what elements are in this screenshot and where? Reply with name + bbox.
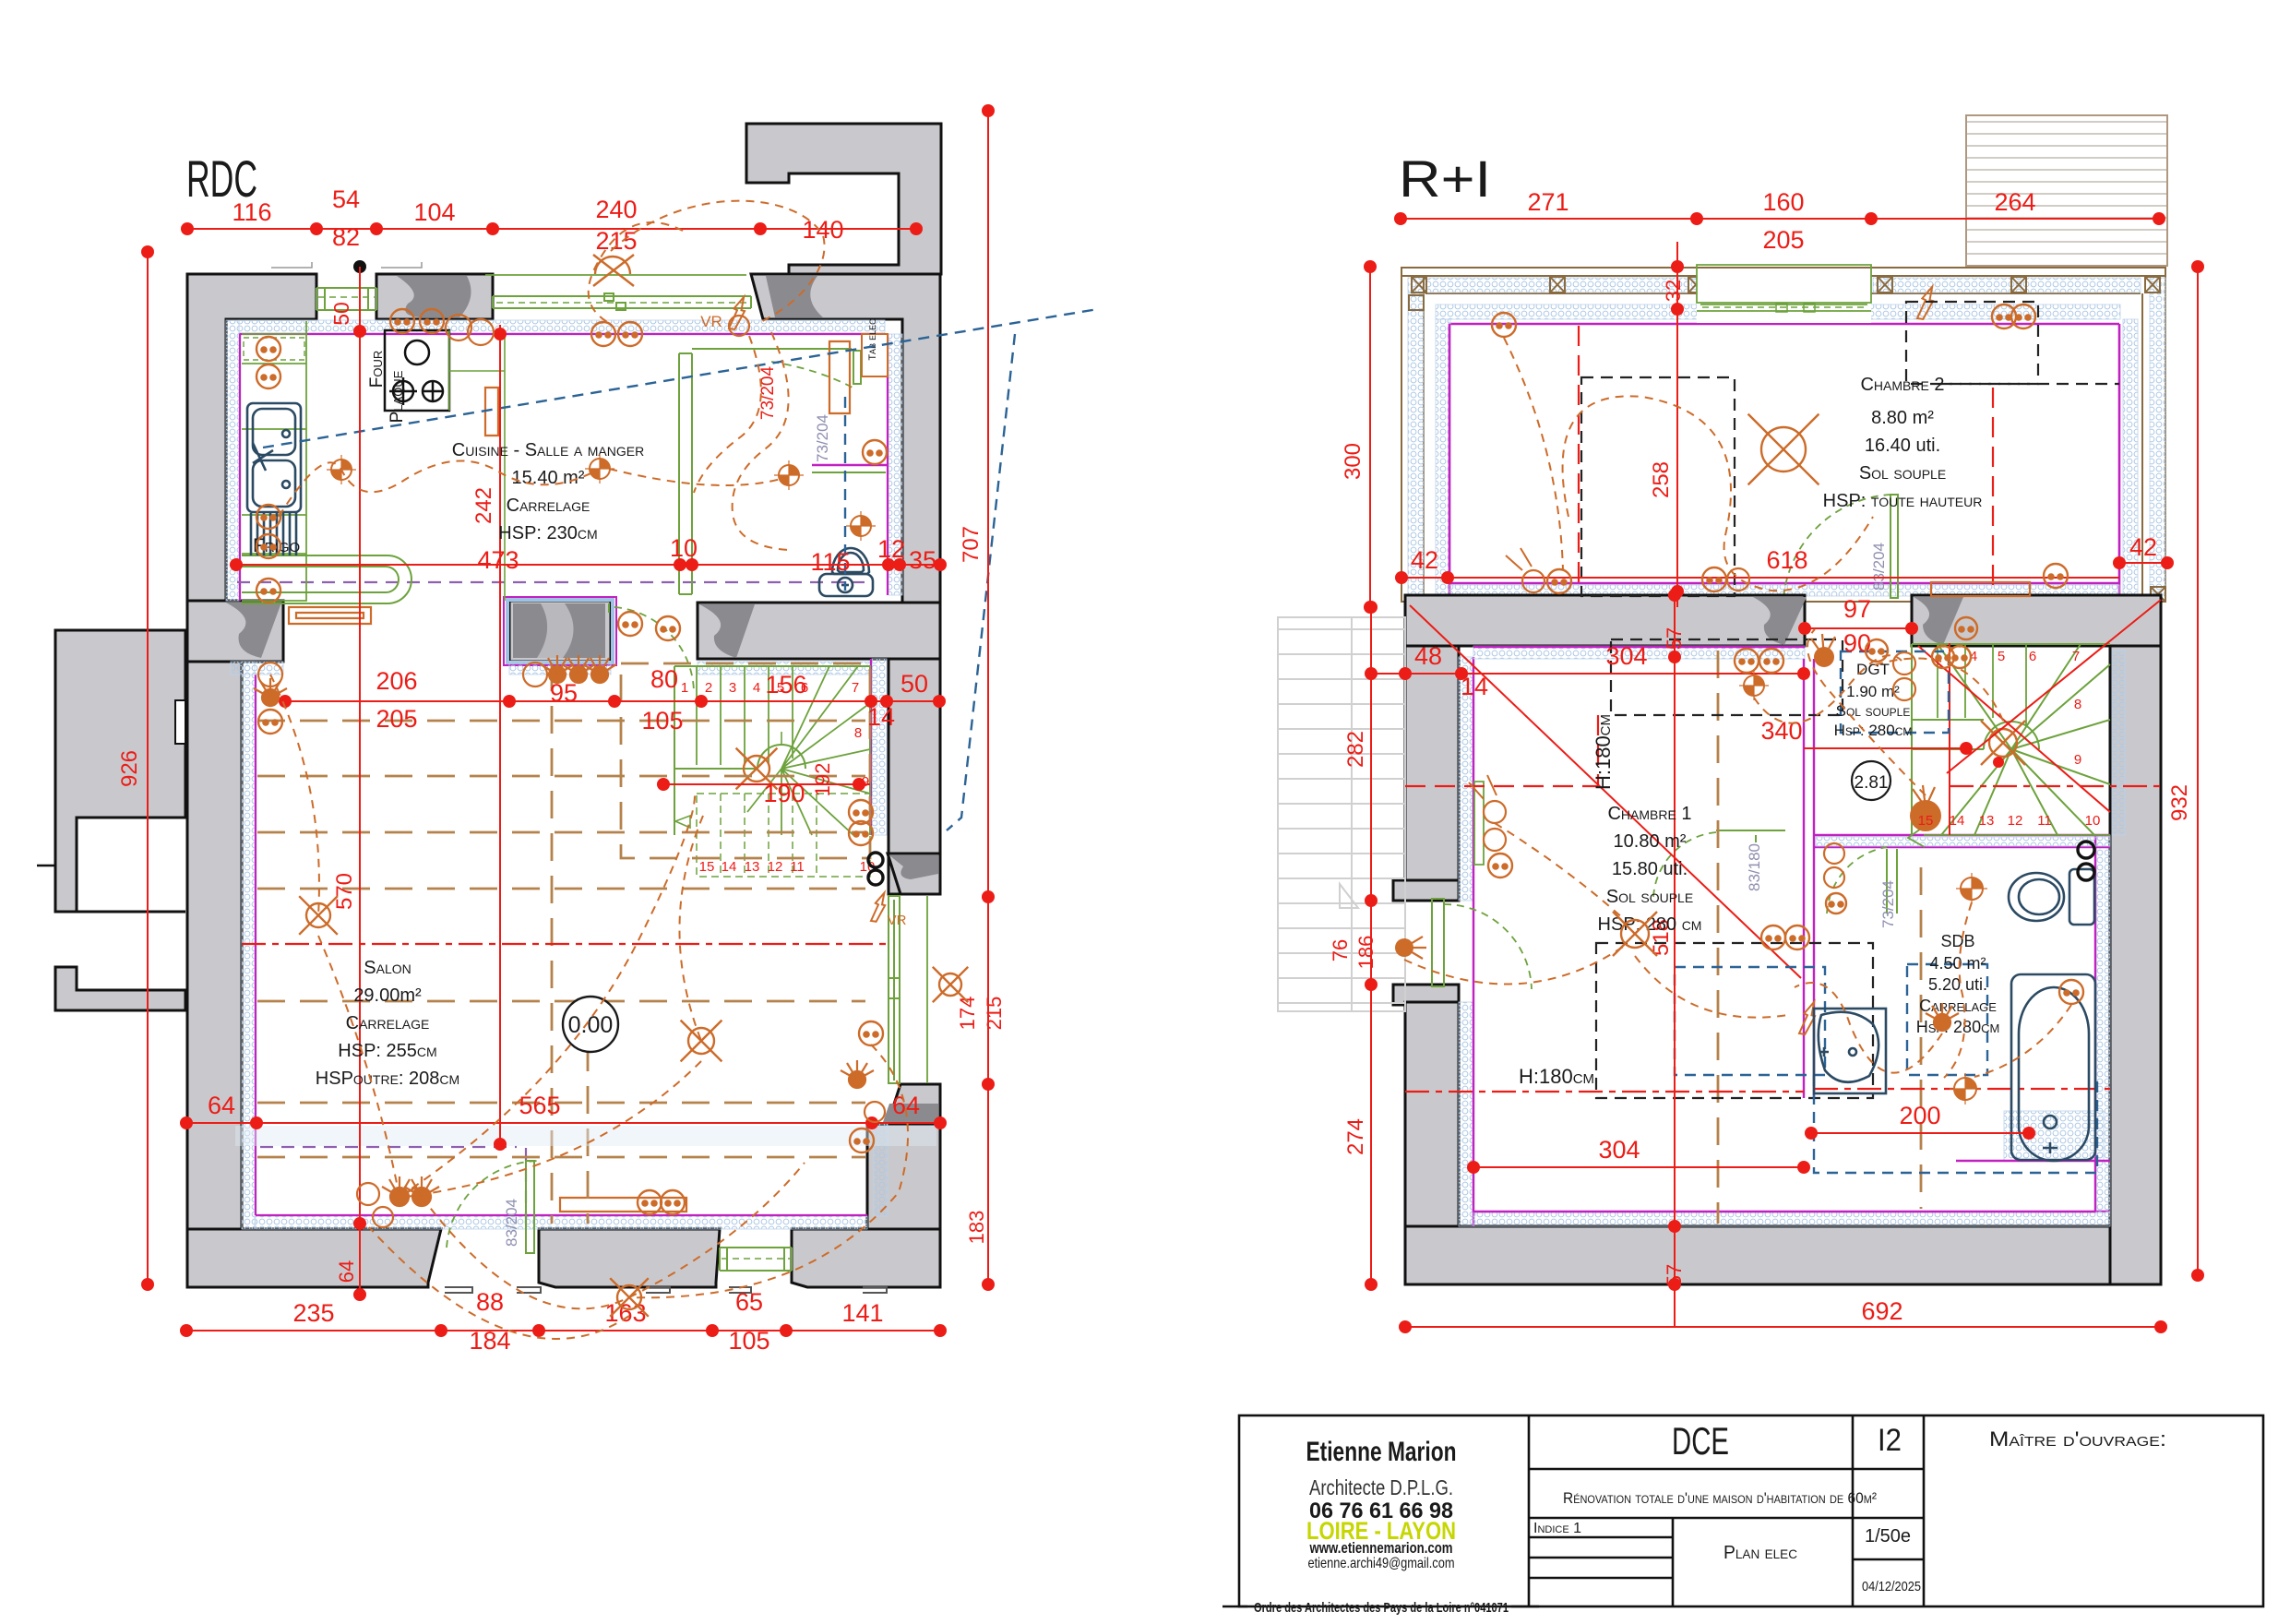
svg-text:565: 565: [519, 1092, 560, 1119]
svg-text:48: 48: [1414, 642, 1442, 670]
svg-text:Carrelage: Carrelage: [1919, 997, 1997, 1015]
svg-text:Four: Four: [367, 351, 387, 388]
svg-text:DCE: DCE: [1672, 1419, 1729, 1463]
svg-text:8: 8: [2074, 697, 2081, 712]
svg-text:Plaque: Plaque: [388, 370, 407, 423]
svg-text:160: 160: [1762, 188, 1804, 216]
svg-text:etienne.archi49@gmail.com: etienne.archi49@gmail.com: [1308, 1556, 1455, 1571]
svg-text:258: 258: [1649, 461, 1674, 498]
svg-text:1/50e: 1/50e: [1865, 1526, 1911, 1546]
svg-text:Architecte D.P.L.G.: Architecte D.P.L.G.: [1309, 1475, 1453, 1499]
svg-text:105: 105: [641, 707, 683, 734]
svg-text:14: 14: [1461, 673, 1488, 700]
svg-text:205: 205: [1762, 226, 1804, 254]
svg-text:65: 65: [735, 1288, 763, 1316]
svg-text:83/204: 83/204: [1870, 543, 1888, 591]
svg-text:www.etiennemarion.com: www.etiennemarion.com: [1309, 1539, 1453, 1557]
svg-text:80: 80: [650, 665, 678, 693]
svg-text:10.80 m²: 10.80 m²: [1614, 831, 1687, 852]
svg-text:TAB ELEC: TAB ELEC: [867, 318, 878, 361]
svg-text:14: 14: [1950, 813, 1965, 829]
svg-text:Cuisine - Salle a manger: Cuisine - Salle a manger: [452, 440, 644, 460]
svg-text:186: 186: [1354, 936, 1378, 970]
svg-text:0.00: 0.00: [568, 1012, 614, 1038]
svg-text:235: 235: [292, 1299, 334, 1327]
svg-text:HSPoutre: 208cm: HSPoutre: 208cm: [316, 1069, 459, 1089]
svg-text:10: 10: [670, 534, 698, 562]
svg-text:35: 35: [909, 546, 936, 574]
svg-text:240: 240: [595, 196, 637, 223]
svg-text:97: 97: [1843, 595, 1871, 623]
svg-text:192: 192: [811, 763, 834, 797]
svg-text:R+I: R+I: [1399, 149, 1491, 208]
svg-text:73/204: 73/204: [1879, 880, 1897, 928]
svg-text:Sol souple: Sol souple: [1836, 702, 1911, 720]
svg-text:12: 12: [877, 535, 905, 563]
svg-text:4: 4: [753, 680, 760, 696]
svg-text:8.80 m²: 8.80 m²: [1871, 408, 1934, 428]
svg-text:95: 95: [550, 679, 578, 707]
svg-text:184: 184: [469, 1327, 510, 1355]
svg-text:242: 242: [471, 487, 496, 524]
svg-text:32: 32: [1662, 280, 1685, 302]
svg-text:926: 926: [117, 750, 142, 787]
svg-text:DGT: DGT: [1856, 661, 1890, 678]
svg-text:2.81: 2.81: [1855, 773, 1889, 793]
svg-text:8: 8: [854, 725, 862, 741]
svg-text:618: 618: [1766, 546, 1807, 574]
svg-text:932: 932: [2167, 784, 2192, 821]
svg-text:57: 57: [1663, 1264, 1686, 1286]
svg-text:104: 104: [413, 198, 455, 226]
svg-text:29.00m²: 29.00m²: [353, 985, 422, 1006]
svg-text:Chambre 1: Chambre 1: [1607, 804, 1691, 824]
svg-text:12: 12: [768, 859, 783, 875]
svg-text:57: 57: [1663, 627, 1686, 650]
svg-text:Chambre 2: Chambre 2: [1860, 375, 1944, 395]
svg-text:Salon: Salon: [364, 958, 411, 978]
svg-text:82: 82: [332, 223, 360, 251]
svg-text:04/12/2025: 04/12/2025: [1862, 1579, 1921, 1594]
svg-text:7: 7: [852, 680, 859, 696]
svg-text:215: 215: [983, 997, 1006, 1031]
svg-text:274: 274: [1343, 1118, 1368, 1155]
svg-text:14: 14: [722, 859, 737, 875]
svg-text:HSP: 255cm: HSP: 255cm: [338, 1041, 436, 1061]
svg-text:115: 115: [810, 548, 850, 576]
svg-text:3: 3: [729, 680, 736, 696]
svg-text:76: 76: [1329, 939, 1352, 961]
svg-text:50: 50: [329, 302, 353, 326]
svg-text:692: 692: [1861, 1297, 1902, 1325]
svg-text:83/204: 83/204: [503, 1199, 520, 1247]
svg-text:SDB: SDB: [1940, 932, 1974, 950]
svg-text:206: 206: [376, 667, 417, 695]
svg-text:156: 156: [765, 671, 806, 699]
svg-text:15: 15: [699, 859, 715, 875]
svg-text:6: 6: [2029, 649, 2036, 664]
svg-text:54: 54: [332, 185, 360, 213]
svg-text:10: 10: [2085, 813, 2101, 829]
svg-text:1.90 m²: 1.90 m²: [1846, 683, 1900, 700]
svg-text:Indice 1: Indice 1: [1533, 1521, 1581, 1536]
svg-text:14: 14: [867, 703, 895, 731]
svg-text:11: 11: [2037, 813, 2052, 829]
svg-text:64: 64: [335, 1260, 358, 1283]
svg-text:190: 190: [763, 780, 805, 807]
svg-text:50: 50: [900, 670, 928, 698]
svg-text:570: 570: [332, 873, 357, 910]
svg-text:16.40 uti.: 16.40 uti.: [1865, 436, 1940, 456]
svg-text:Sol souple: Sol souple: [1606, 887, 1693, 907]
svg-text:7: 7: [2072, 649, 2080, 664]
svg-text:15.80 uti.: 15.80 uti.: [1612, 859, 1688, 879]
svg-text:707: 707: [959, 526, 984, 563]
svg-text:304: 304: [1598, 1136, 1640, 1164]
svg-text:141: 141: [841, 1299, 883, 1327]
svg-text:5.20 uti.: 5.20 uti.: [1928, 975, 1987, 994]
svg-text:64: 64: [208, 1092, 235, 1119]
svg-text:215: 215: [595, 227, 637, 255]
svg-text:15: 15: [1918, 813, 1934, 829]
svg-text:HSP: 230cm: HSP: 230cm: [498, 523, 597, 543]
svg-text:300: 300: [1341, 443, 1366, 480]
svg-text:Maître d'ouvrage:: Maître d'ouvrage:: [1989, 1427, 2166, 1451]
svg-text:H:180cm: H:180cm: [1592, 714, 1615, 790]
svg-text:105: 105: [728, 1327, 769, 1355]
svg-text:11: 11: [790, 859, 805, 875]
svg-text:2: 2: [705, 680, 712, 696]
svg-text:83/180: 83/180: [1746, 843, 1763, 891]
svg-text:88: 88: [476, 1288, 504, 1316]
svg-text:Ordre des Architectes des Pays: Ordre des Architectes des Pays de la Loi…: [1254, 1600, 1509, 1616]
svg-text:205: 205: [376, 705, 417, 733]
svg-text:200: 200: [1899, 1102, 1940, 1129]
svg-text:Hsp: 280cm: Hsp: 280cm: [1916, 1018, 2000, 1036]
svg-text:183: 183: [965, 1211, 988, 1245]
svg-text:304: 304: [1605, 642, 1647, 670]
svg-text:Carrelage: Carrelage: [346, 1013, 430, 1033]
svg-text:42: 42: [1411, 546, 1438, 574]
svg-text:Sol souple: Sol souple: [1859, 463, 1946, 484]
svg-text:VR: VR: [888, 913, 907, 928]
svg-text:73/204: 73/204: [758, 366, 778, 421]
svg-text:13: 13: [745, 859, 760, 875]
svg-text:5: 5: [1998, 649, 2005, 664]
svg-text:473: 473: [477, 546, 519, 574]
svg-text:4.50 m²: 4.50 m²: [1929, 954, 1986, 973]
svg-text:Etienne Marion: Etienne Marion: [1306, 1437, 1457, 1467]
svg-text:H:180cm: H:180cm: [1519, 1065, 1594, 1088]
svg-text:I2: I2: [1878, 1423, 1902, 1458]
svg-text:73/204: 73/204: [814, 414, 831, 462]
svg-text:271: 271: [1527, 188, 1568, 216]
svg-text:13: 13: [1979, 813, 1995, 829]
svg-text:1: 1: [681, 680, 688, 696]
svg-text:116: 116: [232, 198, 271, 226]
svg-text:Carrelage: Carrelage: [507, 496, 590, 516]
svg-text:264: 264: [1994, 188, 2035, 216]
svg-text:Rénovation totale d'une maison: Rénovation totale d'une maison d'habitat…: [1563, 1489, 1877, 1507]
svg-text:9: 9: [2074, 752, 2081, 768]
svg-text:Hsp: 280cm: Hsp: 280cm: [1834, 722, 1913, 739]
svg-text:HSP: toute hauteur: HSP: toute hauteur: [1823, 491, 1983, 511]
svg-text:Plan elec: Plan elec: [1723, 1543, 1797, 1563]
svg-text:12: 12: [2008, 813, 2023, 829]
svg-text:282: 282: [1343, 731, 1368, 768]
svg-text:VR: VR: [700, 313, 722, 330]
svg-text:42: 42: [2129, 533, 2157, 561]
